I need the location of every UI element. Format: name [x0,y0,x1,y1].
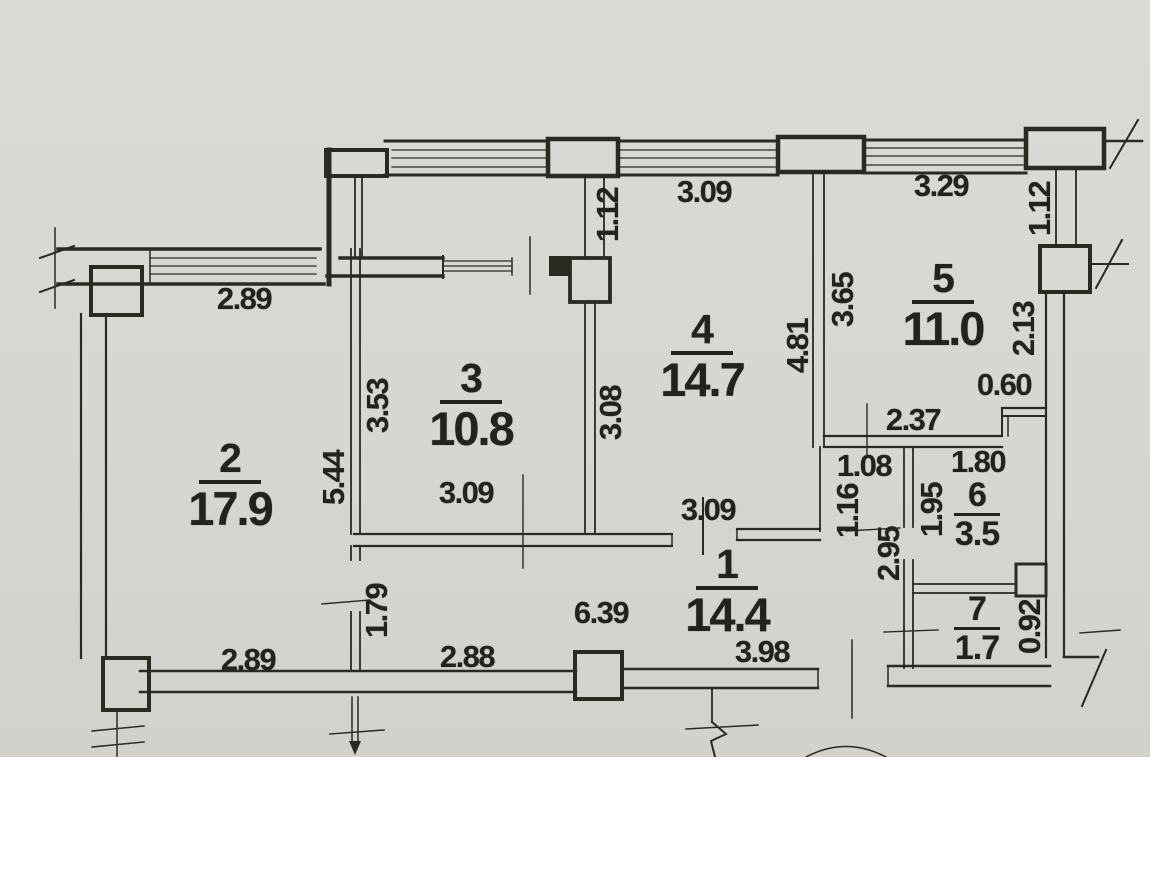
dimension-label: 1.95 [913,440,951,580]
room-label-2: 217.9 [140,438,320,533]
loggia-walls [326,150,443,284]
dimension-label: 3.53 [359,336,397,476]
dimension-label: 0.92 [1011,557,1049,697]
dimension-label: 1.12 [1021,139,1059,279]
room-number: 2 [199,438,261,484]
room-area: 1.7 [955,631,999,666]
dimension-label: 3.08 [592,343,630,483]
dimension-label: 3.09 [638,491,778,529]
room-area: 10.8 [429,405,512,453]
room-area: 17.9 [188,485,271,533]
room-number: 1 [696,544,758,590]
dimension-label: 2.88 [397,638,537,676]
dimension-label: 2.95 [870,484,908,624]
room-number: 5 [912,258,974,304]
dimension-label: 1.12 [589,145,627,285]
room-area: 14.7 [660,356,743,404]
room-number: 6 [954,478,1000,516]
dimension-label: 0.60 [934,366,1074,404]
dimension-label: 3.09 [634,173,774,211]
page-bottom-margin [0,757,1150,870]
room-area: 11.0 [903,305,984,353]
left-break-marks [40,228,74,308]
room-area: 3.5 [955,517,999,552]
room-label-4: 414.7 [612,309,792,404]
dimension-label: 2.37 [843,401,983,439]
dimension-label: 3.29 [871,167,1011,205]
floor-plan-page: 114.4217.9310.8414.7511.063.571.7 2.891.… [0,0,1150,870]
dimension-label: 5.44 [315,408,353,548]
axis-break-symbols [92,690,886,757]
room-area: 14.4 [685,591,768,639]
room-number: 4 [671,309,733,355]
dimension-label: 6.39 [531,594,671,632]
dimension-label: 1.79 [358,541,396,681]
dimension-label: 2.89 [178,641,318,679]
room-number: 7 [954,592,1000,630]
dimension-label: 3.65 [824,230,862,370]
room-number: 3 [440,358,502,404]
dimension-label: 4.81 [779,276,817,416]
dimension-label: 1.16 [829,441,867,581]
dimension-label: 3.98 [692,633,832,671]
dimension-label: 2.89 [174,280,314,318]
room-label-3: 310.8 [381,358,561,453]
dimension-tick-overlay [702,497,704,555]
room3-window-door [443,237,571,294]
dimension-label: 3.09 [396,474,536,512]
